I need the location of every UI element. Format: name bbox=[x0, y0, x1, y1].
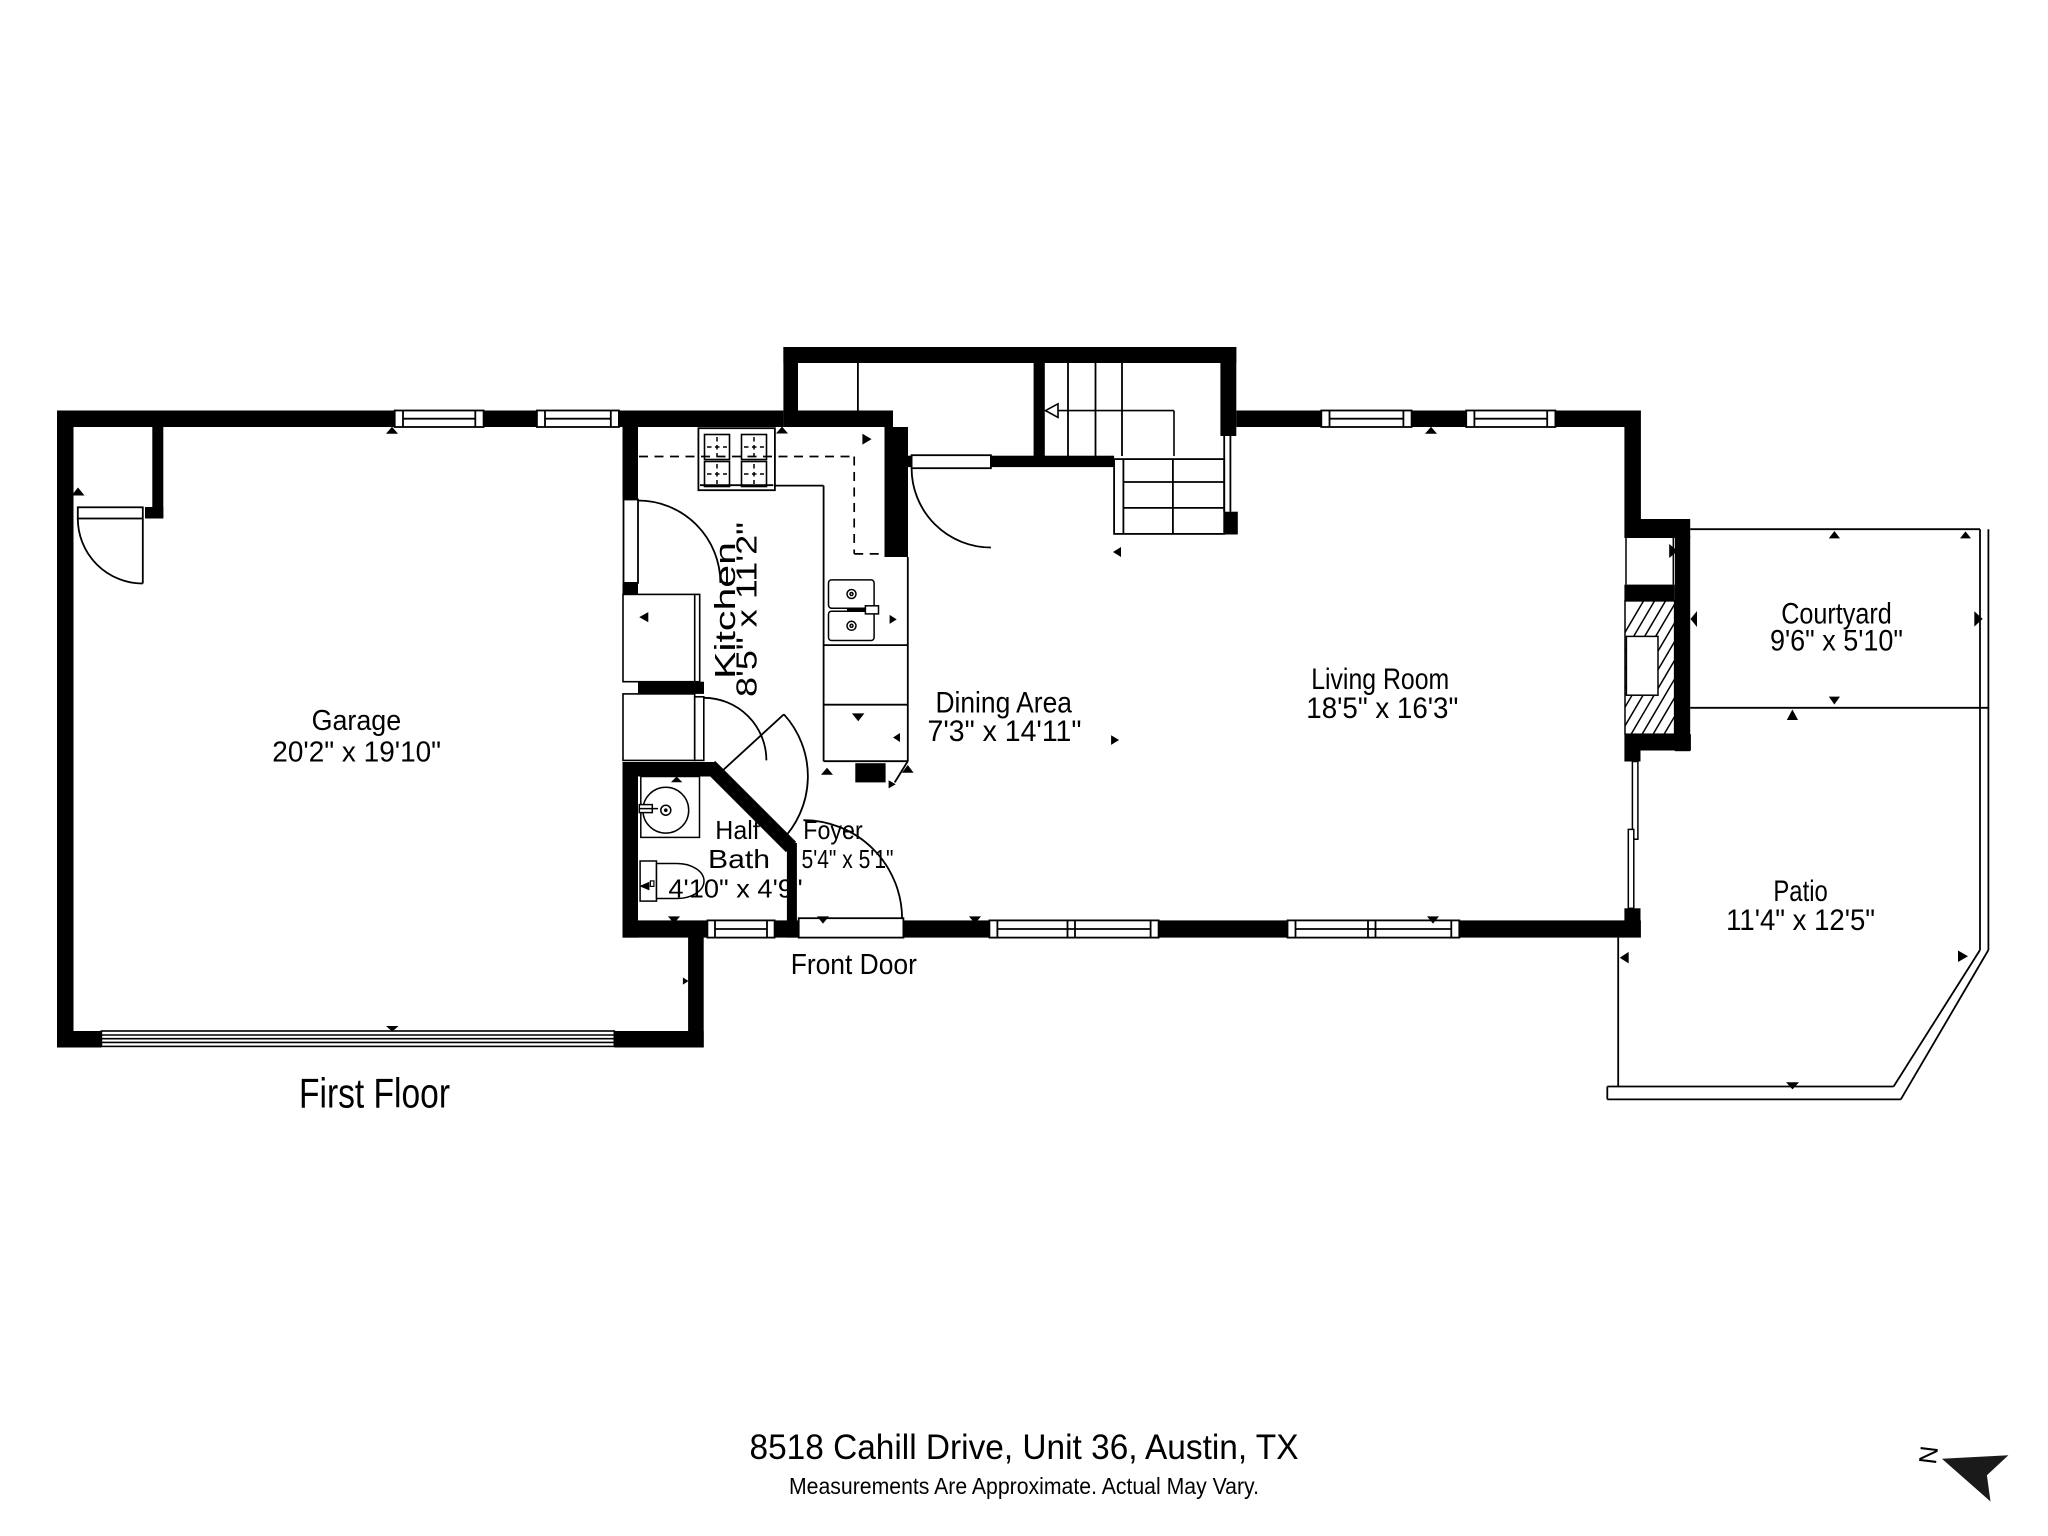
svg-text:20'2" x 19'10": 20'2" x 19'10" bbox=[272, 737, 441, 769]
svg-text:8518 Cahill Drive, Unit 36, Au: 8518 Cahill Drive, Unit 36, Austin, TX bbox=[750, 1428, 1299, 1467]
svg-text:9'6" x 5'10": 9'6" x 5'10" bbox=[1770, 624, 1903, 657]
svg-text:5'4" x 5'1": 5'4" x 5'1" bbox=[802, 844, 894, 874]
svg-text:Half: Half bbox=[715, 815, 760, 845]
svg-text:Front Door: Front Door bbox=[791, 949, 918, 981]
svg-text:Garage: Garage bbox=[312, 705, 402, 737]
svg-text:7'3" x 14'11": 7'3" x 14'11" bbox=[928, 715, 1082, 748]
svg-text:First Floor: First Floor bbox=[299, 1070, 450, 1117]
svg-text:N: N bbox=[1913, 1444, 1943, 1465]
svg-text:4'10" x 4'9": 4'10" x 4'9" bbox=[668, 873, 802, 903]
svg-text:18'5" x 16'3": 18'5" x 16'3" bbox=[1306, 692, 1458, 725]
svg-text:Measurements Are Approximate.: Measurements Are Approximate. Actual May… bbox=[789, 1473, 1259, 1499]
svg-text:11'4" x 12'5": 11'4" x 12'5" bbox=[1726, 904, 1875, 937]
svg-text:8'5" x 11'2": 8'5" x 11'2" bbox=[732, 522, 764, 697]
svg-text:Bath: Bath bbox=[708, 844, 770, 874]
svg-text:Foyer: Foyer bbox=[803, 815, 863, 845]
